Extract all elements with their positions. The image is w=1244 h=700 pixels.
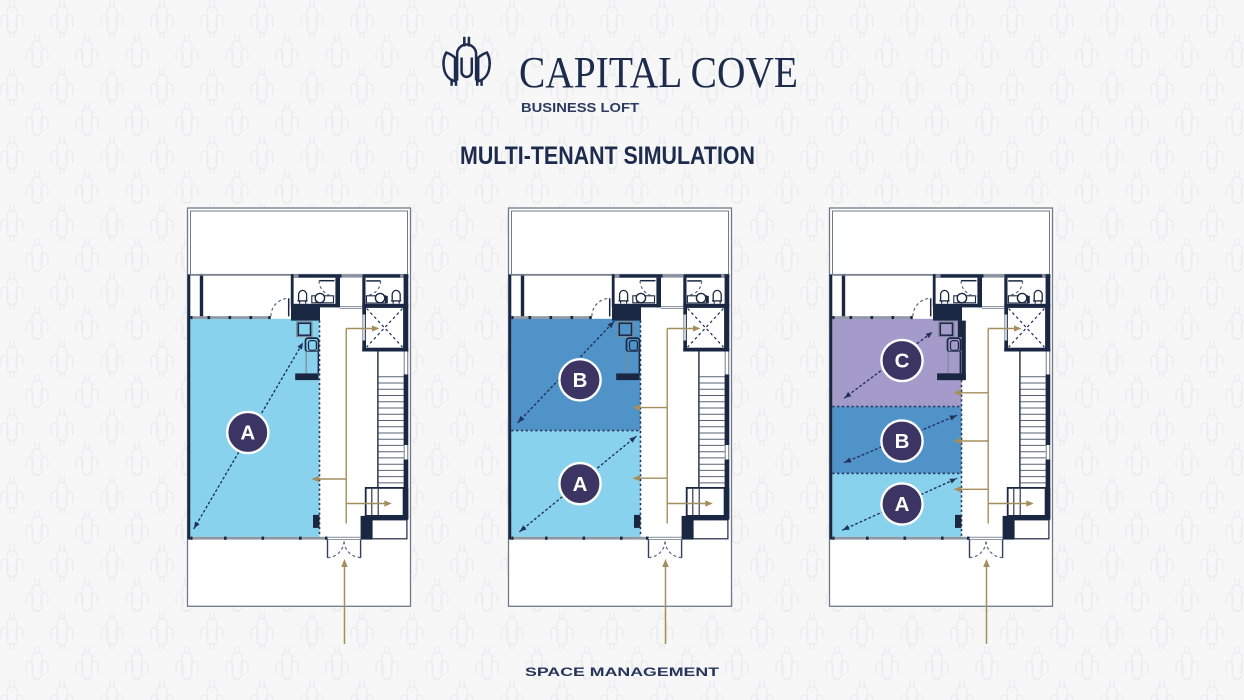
svg-text:SPACE MANAGEMENT: SPACE MANAGEMENT [525, 667, 719, 679]
svg-text:A: A [240, 422, 255, 445]
svg-text:B: B [573, 369, 588, 392]
svg-text:A: A [573, 473, 588, 496]
svg-text:A: A [895, 493, 910, 516]
svg-text:BUSINESS LOFT: BUSINESS LOFT [521, 100, 639, 115]
svg-text:C: C [895, 350, 910, 373]
svg-text:B: B [895, 430, 910, 453]
svg-text:CAPITAL COVE: CAPITAL COVE [519, 48, 798, 97]
svg-text:MULTI-TENANT SIMULATION: MULTI-TENANT SIMULATION [460, 142, 755, 170]
